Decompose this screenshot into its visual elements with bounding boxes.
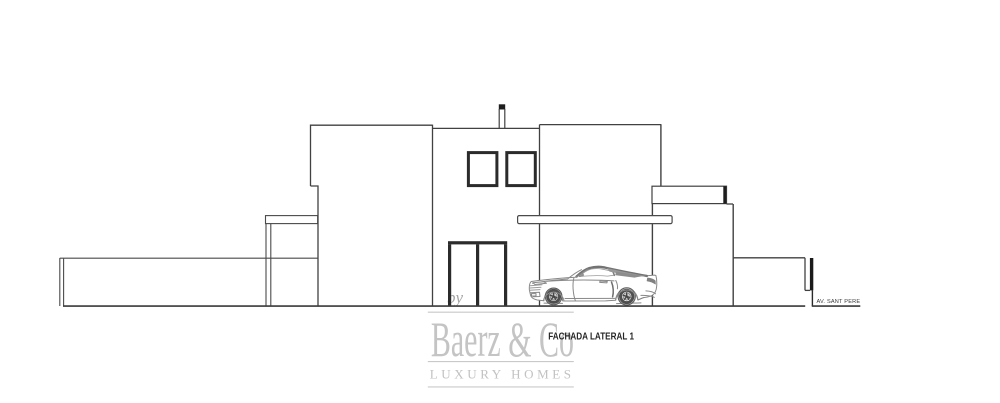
svg-text:LUXURY HOMES: LUXURY HOMES xyxy=(430,367,575,382)
svg-text:FACHADA LATERAL 1: FACHADA LATERAL 1 xyxy=(548,332,634,343)
svg-text:AV. SANT PERE: AV. SANT PERE xyxy=(817,299,861,305)
